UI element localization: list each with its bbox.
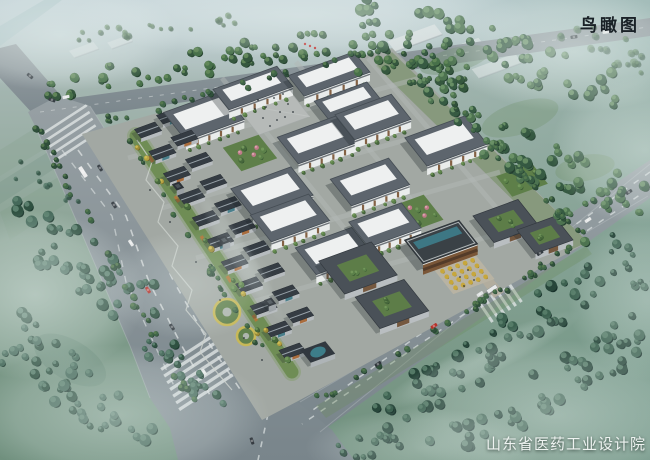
tree-highlight: [454, 118, 458, 122]
tree-highlight: [538, 237, 540, 239]
tree-highlight: [264, 328, 267, 331]
pedestrian: [257, 99, 259, 101]
tree-highlight: [428, 98, 431, 101]
tree-highlight: [45, 92, 49, 96]
tree-highlight: [241, 146, 244, 149]
ginkgo-tree: [444, 274, 449, 279]
tree-highlight: [183, 66, 186, 69]
tree-highlight: [581, 237, 586, 242]
tree-highlight: [333, 391, 335, 393]
tree-highlight: [450, 83, 454, 87]
tree-highlight: [85, 209, 88, 212]
tree-highlight: [418, 58, 424, 64]
tree-highlight: [418, 74, 421, 77]
tree-highlight: [274, 102, 276, 104]
tree-highlight: [433, 213, 435, 215]
tree-highlight: [324, 393, 326, 395]
tree-highlight: [425, 78, 428, 81]
tree-highlight: [52, 150, 55, 153]
tree-highlight: [312, 235, 314, 237]
tree-highlight: [367, 144, 369, 146]
tree-highlight: [488, 146, 491, 149]
tree-highlight: [294, 242, 296, 244]
tree-highlight: [19, 160, 22, 163]
tree-highlight: [106, 114, 109, 117]
tree-highlight: [382, 66, 387, 71]
tree-highlight: [144, 156, 147, 159]
tree-highlight: [64, 198, 66, 200]
tree-highlight: [243, 113, 245, 115]
tree-highlight: [535, 290, 539, 294]
tree-highlight: [33, 126, 37, 130]
tree-highlight: [207, 142, 209, 144]
design-institute-label: 山东省医药工业设计院: [486, 433, 646, 454]
pedestrian: [254, 108, 256, 110]
tree-highlight: [384, 203, 386, 205]
tree-highlight: [332, 58, 335, 61]
tree-highlight: [356, 147, 358, 149]
pedestrian: [473, 279, 475, 281]
tree-highlight: [450, 166, 452, 168]
tree-highlight: [271, 70, 274, 73]
tree-highlight: [375, 56, 380, 61]
tree-highlight: [519, 168, 522, 171]
pedestrian: [169, 221, 171, 223]
tree-highlight: [396, 351, 399, 354]
tree-highlight: [476, 112, 479, 115]
tree-highlight: [436, 67, 439, 70]
ginkgo-tree: [440, 269, 445, 274]
tree-highlight: [480, 150, 485, 155]
tree-highlight: [355, 68, 359, 72]
ginkgo-tree: [479, 269, 484, 274]
tree-highlight: [498, 288, 500, 290]
tree-highlight: [542, 265, 545, 268]
tree-highlight: [363, 369, 365, 371]
tree-highlight: [259, 155, 262, 158]
tree-highlight: [533, 184, 536, 187]
tree-highlight: [162, 193, 164, 195]
tree-highlight: [568, 212, 571, 215]
tree-highlight: [494, 141, 497, 144]
tree-highlight: [424, 87, 429, 92]
tree-highlight: [412, 80, 415, 83]
tree-highlight: [538, 265, 541, 268]
tree-highlight: [338, 157, 340, 159]
tree-highlight: [174, 65, 178, 69]
tree-highlight: [476, 302, 479, 305]
tree-highlight: [330, 392, 333, 395]
tree-highlight: [88, 217, 91, 220]
tree-highlight: [550, 262, 553, 265]
ginkgo-tree: [455, 263, 460, 268]
car-windshield: [65, 96, 68, 99]
tree-highlight: [557, 210, 560, 213]
tree-highlight: [253, 340, 256, 343]
tree-highlight: [396, 245, 398, 247]
pedestrian: [279, 111, 281, 113]
tree-highlight: [497, 313, 503, 319]
tree-highlight: [227, 134, 229, 136]
tree-highlight: [499, 125, 502, 128]
tree-highlight: [452, 101, 455, 104]
tree-highlight: [164, 74, 168, 78]
tree-highlight: [561, 280, 564, 283]
tree-highlight: [37, 179, 40, 182]
pedestrian: [269, 125, 271, 127]
tree-highlight: [493, 290, 495, 292]
tree-highlight: [524, 176, 527, 179]
scene-canvas: [0, 0, 650, 460]
ginkgo-tree: [470, 258, 475, 263]
tree-highlight: [471, 128, 473, 130]
pedestrian: [149, 189, 151, 191]
tree-highlight: [409, 369, 415, 375]
tree-highlight: [354, 375, 357, 378]
pedestrian: [282, 93, 284, 95]
tree-highlight: [172, 99, 175, 102]
tree-highlight: [311, 168, 313, 170]
tree-highlight: [320, 164, 322, 166]
tree-highlight: [267, 76, 270, 79]
pedestrian: [262, 117, 264, 119]
tree-highlight: [351, 271, 354, 274]
tree-highlight: [451, 92, 454, 95]
ginkgo-tree: [471, 272, 476, 277]
tree-highlight: [373, 404, 378, 409]
tree-highlight: [521, 128, 526, 133]
tree-highlight: [24, 202, 29, 207]
tree-highlight: [182, 70, 185, 73]
tree-highlight: [57, 164, 60, 167]
tree-highlight: [261, 148, 264, 151]
tree-highlight: [392, 199, 394, 201]
tree-highlight: [536, 169, 542, 175]
tree-highlight: [63, 174, 66, 177]
aerial-rendering-image: 鸟瞰图 山东省医药工业设计院: [0, 0, 650, 460]
pedestrian: [287, 103, 289, 105]
tree-highlight: [549, 196, 552, 199]
ginkgo-tree: [475, 263, 480, 268]
tree-highlight: [321, 232, 323, 234]
tree-highlight: [314, 393, 317, 396]
tree-highlight: [468, 159, 470, 161]
tree-highlight: [114, 116, 117, 119]
tree-highlight: [160, 101, 163, 104]
flowering-tree-highlight: [423, 214, 425, 216]
tree-highlight: [262, 106, 264, 108]
tree-highlight: [201, 92, 204, 95]
pedestrian: [292, 111, 294, 113]
tree-highlight: [566, 219, 569, 222]
tree-highlight: [283, 69, 286, 72]
tree-highlight: [546, 281, 552, 287]
tree-highlight: [415, 207, 418, 210]
tree-highlight: [405, 346, 408, 349]
tree-highlight: [239, 158, 242, 161]
tree-highlight: [484, 138, 488, 142]
tree-highlight: [302, 171, 304, 173]
tree-highlight: [509, 154, 514, 159]
tree-highlight: [127, 139, 130, 142]
tree-highlight: [206, 89, 209, 92]
ginkgo-tree: [456, 277, 461, 282]
tree-highlight: [272, 337, 275, 340]
tree-highlight: [465, 309, 467, 311]
tree-highlight: [302, 239, 304, 241]
tree-highlight: [517, 156, 523, 162]
tree-highlight: [566, 245, 569, 248]
view-title-label: 鸟瞰图: [580, 11, 640, 36]
tree-highlight: [393, 60, 396, 63]
tree-highlight: [76, 199, 78, 201]
tree-highlight: [505, 162, 510, 167]
ginkgo-tree: [460, 269, 465, 274]
tree-highlight: [478, 297, 481, 300]
tree-highlight: [36, 171, 38, 173]
tree-highlight: [232, 117, 234, 119]
tree-highlight: [108, 119, 110, 121]
tree-highlight: [544, 198, 547, 201]
pedestrian: [261, 359, 263, 361]
tree-highlight: [372, 207, 374, 209]
tree-highlight: [14, 177, 16, 179]
tree-highlight: [52, 163, 55, 166]
tree-highlight: [505, 288, 508, 291]
ginkgo-tree: [449, 280, 454, 285]
tree-highlight: [523, 158, 529, 164]
tree-highlight: [461, 162, 463, 164]
tree-highlight: [490, 140, 495, 145]
tree-highlight: [490, 330, 494, 334]
tree-highlight: [393, 134, 395, 136]
tree-highlight: [265, 57, 269, 61]
tree-highlight: [171, 212, 174, 215]
tree-highlight: [445, 320, 448, 323]
tree-highlight: [125, 116, 127, 118]
tree-highlight: [542, 310, 547, 315]
tree-highlight: [440, 85, 445, 90]
tree-highlight: [496, 156, 499, 159]
tree-highlight: [508, 219, 511, 222]
pedestrian: [459, 276, 461, 278]
tree-highlight: [463, 342, 466, 345]
pedestrian: [284, 116, 286, 118]
pedestrian: [276, 119, 278, 121]
tree-highlight: [152, 343, 155, 346]
flowering-tree-highlight: [255, 146, 257, 148]
tree-highlight: [44, 183, 47, 186]
tree-highlight: [518, 184, 521, 187]
tree-highlight: [463, 111, 466, 114]
tree-highlight: [431, 173, 433, 175]
tree-highlight: [147, 339, 150, 342]
tree-highlight: [499, 320, 503, 324]
flowering-tree-highlight: [252, 153, 254, 155]
tree-highlight: [384, 306, 386, 308]
tree-highlight: [409, 59, 412, 62]
tree-highlight: [469, 106, 473, 110]
tree-highlight: [403, 131, 405, 133]
tree-highlight: [13, 197, 18, 202]
tree-highlight: [497, 216, 500, 219]
tree-highlight: [135, 145, 138, 148]
ginkgo-tree: [453, 285, 458, 290]
tree-highlight: [418, 79, 423, 84]
tree-highlight: [473, 124, 478, 129]
tree-highlight: [517, 164, 520, 167]
tree-highlight: [245, 85, 248, 88]
tree-highlight: [137, 81, 140, 84]
pedestrian: [467, 269, 469, 271]
ginkgo-tree: [463, 261, 468, 266]
tree-highlight: [44, 140, 47, 143]
flowering-tree-highlight: [238, 151, 240, 153]
tree-highlight: [155, 179, 158, 182]
tree-highlight: [306, 104, 308, 106]
tree-highlight: [188, 148, 190, 150]
tree-highlight: [319, 282, 321, 284]
tree-highlight: [182, 95, 184, 97]
tree-highlight: [438, 170, 440, 172]
tree-highlight: [528, 270, 531, 273]
tree-highlight: [407, 80, 410, 83]
tree-highlight: [197, 145, 199, 147]
flowering-tree-highlight: [408, 206, 410, 208]
tree-highlight: [504, 179, 507, 182]
tree-highlight: [363, 268, 365, 270]
tree-highlight: [13, 206, 19, 212]
ginkgo-tree: [452, 272, 457, 277]
tree-highlight: [508, 322, 513, 327]
tree-highlight: [323, 62, 326, 65]
tree-highlight: [402, 196, 404, 198]
pedestrian: [451, 269, 453, 271]
tree-highlight: [273, 250, 275, 252]
tree-highlight: [170, 340, 175, 345]
ginkgo-tree: [464, 274, 469, 279]
tree-highlight: [184, 204, 187, 207]
tree-highlight: [352, 214, 354, 216]
ginkgo-tree: [483, 274, 488, 279]
tree-highlight: [494, 146, 497, 149]
tree-highlight: [285, 357, 288, 360]
tree-highlight: [255, 328, 258, 331]
tree-highlight: [523, 276, 525, 278]
tree-highlight: [375, 140, 377, 142]
pedestrian: [265, 106, 267, 108]
tree-highlight: [261, 343, 263, 345]
tree-highlight: [430, 53, 433, 56]
tree-highlight: [146, 75, 149, 78]
flowering-tree-highlight: [425, 206, 427, 208]
tree-highlight: [555, 251, 558, 254]
tree-highlight: [351, 153, 353, 155]
tree-highlight: [387, 248, 389, 250]
tree-highlight: [539, 262, 541, 264]
pedestrian: [273, 97, 275, 99]
tree-highlight: [236, 131, 238, 133]
tree-highlight: [576, 228, 579, 231]
tree-highlight: [384, 297, 386, 299]
tree-highlight: [138, 156, 141, 159]
tree-highlight: [484, 293, 487, 296]
ginkgo-tree: [468, 280, 473, 285]
tree-highlight: [384, 56, 388, 60]
tree-highlight: [190, 97, 193, 100]
tree-highlight: [537, 307, 542, 312]
tree-highlight: [63, 183, 66, 186]
pedestrian: [243, 337, 245, 339]
tree-highlight: [560, 214, 563, 217]
tree-highlight: [581, 230, 584, 233]
ginkgo-tree: [476, 277, 481, 282]
tree-highlight: [285, 98, 287, 100]
tree-highlight: [53, 92, 57, 96]
tree-highlight: [362, 210, 364, 212]
tree-highlight: [330, 160, 332, 162]
pedestrian: [463, 285, 465, 287]
tree-highlight: [385, 137, 387, 139]
tree-highlight: [155, 76, 159, 80]
tree-highlight: [284, 245, 286, 247]
tree-highlight: [440, 97, 444, 101]
tree-highlight: [205, 61, 210, 66]
tree-highlight: [156, 108, 159, 111]
tree-highlight: [218, 137, 220, 139]
tree-highlight: [240, 80, 243, 83]
tree-highlight: [68, 192, 71, 195]
tree-highlight: [54, 157, 57, 160]
tree-highlight: [41, 144, 44, 147]
